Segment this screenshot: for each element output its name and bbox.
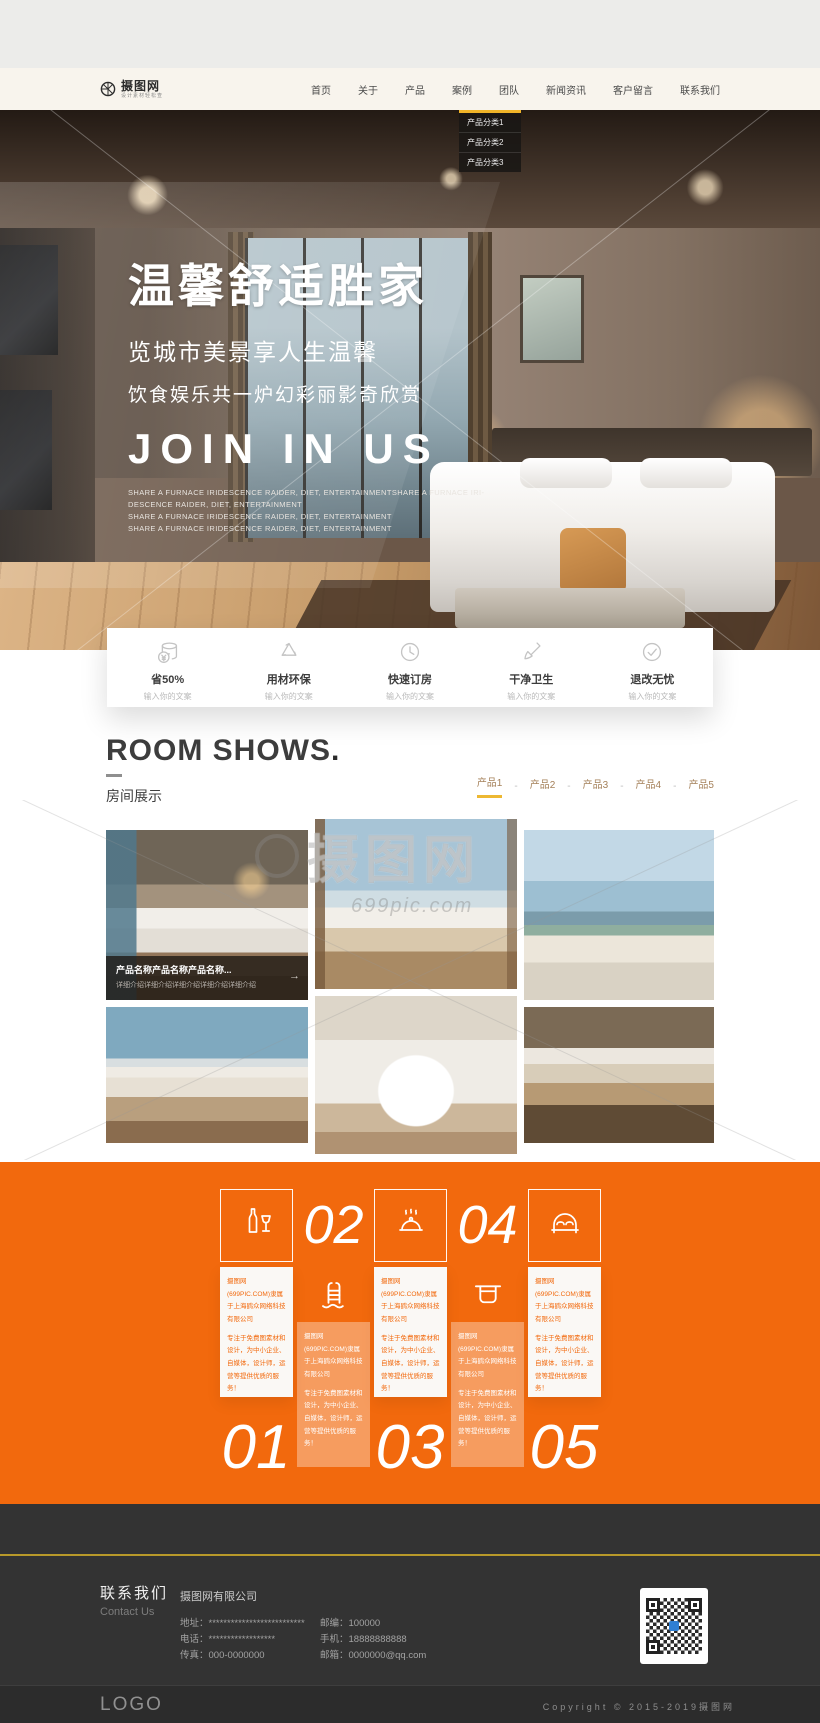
promo-icon-towel [451, 1267, 524, 1325]
tab-separator: - [620, 781, 623, 792]
promo-card-text: 摄图网(699PIC.COM)隶属于上海鹍众网络科技有限公司 [381, 1276, 440, 1327]
page: 摄图网 设计素材轻松查 首页 关于 产品 案例 团队 新闻资讯 客户留言 联系我… [0, 0, 820, 1723]
promo-card-text: 专注于免费图素材和设计，为中小企业、自媒体，设计师，运营等提供优质的服务！ [381, 1333, 440, 1396]
footer-logo: LOGO [100, 1694, 163, 1716]
logo-name: 摄图网 [121, 80, 163, 92]
feature-clean: 干净卫生 输入你的文案 [471, 628, 592, 707]
promo-icon-pool [297, 1267, 370, 1325]
footer-copyright: Copyright © 2015-2019摄图网 [543, 1700, 735, 1713]
promo-card-white: 摄图网(699PIC.COM)隶属于上海鹍众网络科技有限公司 专注于免费图素材和… [220, 1267, 293, 1397]
tab-product-3[interactable]: 产品3 [583, 776, 609, 797]
hero-text-block: 温馨舒适胜家 览城市美景享人生温馨 饮食娱乐共一炉幻彩丽影奇欣赏 JOIN IN… [128, 250, 688, 535]
promo-card-text: 专注于免费图素材和设计，为中小企业、自媒体，设计师，运营等提供优质的服务！ [458, 1388, 517, 1451]
footer-label: 传真： [180, 1650, 209, 1661]
promo-card-text: 摄图网(699PIC.COM)隶属于上海鹍众网络科技有限公司 [535, 1276, 594, 1327]
promo-number-01: 01 [206, 1412, 306, 1483]
nav-item-cases[interactable]: 案例 [452, 82, 472, 97]
nav-item-feedback[interactable]: 客户留言 [613, 82, 653, 97]
wine-icon [237, 1203, 277, 1248]
promo-card-text: 专注于免费图素材和设计，为中小企业、自媒体，设计师，运营等提供优质的服务！ [227, 1333, 286, 1396]
hero-headline-en: JOIN IN US [128, 425, 688, 473]
footer-label: 电话： [180, 1634, 209, 1645]
feature-save: 省50% 输入你的文案 [107, 628, 228, 707]
footer-bottom-bar: LOGO Copyright © 2015-2019摄图网 [0, 1685, 820, 1723]
footer-label: 邮编： [320, 1618, 349, 1629]
feature-fast-booking: 快速订房 输入你的文案 [349, 628, 470, 707]
feature-title: 快速订房 [349, 671, 470, 687]
dropdown-item-category3[interactable]: 产品分类3 [459, 152, 521, 172]
footer-value: 000-0000000 [209, 1650, 265, 1661]
nav-item-contact[interactable]: 联系我们 [680, 82, 720, 97]
tab-separator: - [673, 781, 676, 792]
tab-product-1[interactable]: 产品1 [477, 774, 503, 798]
footer-value: ************************** [209, 1618, 305, 1629]
promo-number-05: 05 [514, 1412, 614, 1483]
promo-number-02: 02 [297, 1189, 370, 1262]
qr-finder [688, 1598, 702, 1612]
footer-zip-line: 邮编：100000 [320, 1616, 426, 1632]
gallery-photo-bedroom[interactable]: 产品名称产品名称产品名称... 详细介绍详细介绍详细介绍详细介绍详细介绍 → [106, 830, 308, 1000]
footer-address-line: 地址：************************** [180, 1616, 305, 1632]
food-cloche-icon [391, 1203, 431, 1248]
promo-iconbox-bed [528, 1189, 601, 1262]
recycle-icon [228, 637, 349, 667]
nav-item-home[interactable]: 首页 [311, 82, 331, 97]
main-nav: 首页 关于 产品 案例 团队 新闻资讯 客户留言 联系我们 [311, 82, 720, 97]
feature-bar: 省50% 输入你的文案 用材环保 输入你的文案 快速订房 输入你的文案 [107, 628, 713, 707]
promo-iconbox-drinks [220, 1189, 293, 1262]
gallery-caption-desc: 详细介绍详细介绍详细介绍详细介绍详细介绍 [116, 980, 298, 990]
coins-icon [107, 637, 228, 667]
product-tabs: 产品1 - 产品2 - 产品3 - 产品4 - 产品5 [477, 774, 714, 798]
hero-desc-line: SHARE A FURNACE IRIDESCENCE RAIDER, DIET… [128, 511, 688, 523]
feature-title: 用材环保 [228, 671, 349, 687]
footer-company-name: 摄图网有限公司 [180, 1588, 257, 1604]
bed-icon [545, 1203, 585, 1248]
aperture-logo-icon [100, 81, 116, 97]
feature-title: 干净卫生 [471, 671, 592, 687]
promo-iconbox-food [374, 1189, 447, 1262]
promo-section: 02 04 摄图网(699PIC.COM)隶属于上海鹍众网络科技有限公司 [0, 1162, 820, 1504]
gallery-photo-washbasin[interactable] [106, 1007, 308, 1143]
feature-title: 退改无忧 [592, 671, 713, 687]
tab-product-2[interactable]: 产品2 [530, 776, 556, 797]
room-shows-section-head: ROOM SHOWS. 房间展示 产品1 - 产品2 - 产品3 - 产品4 -… [106, 734, 714, 806]
gallery-caption-title: 产品名称产品名称产品名称... [116, 963, 298, 976]
feature-subtitle: 输入你的文案 [471, 691, 592, 702]
logo-tagline: 设计素材轻松查 [121, 94, 163, 99]
gallery-caption: 产品名称产品名称产品名称... 详细介绍详细介绍详细介绍详细介绍详细介绍 → [106, 956, 308, 1000]
feature-worry-free: 退改无忧 输入你的文案 [592, 628, 713, 707]
gallery-photo-bathroom-counter[interactable] [524, 1007, 714, 1143]
logo-text-block: 摄图网 设计素材轻松查 [121, 80, 163, 99]
footer-info-right: 邮编：100000 手机：18888888888 邮箱：0000000@qq.c… [320, 1616, 426, 1664]
nav-item-products[interactable]: 产品 [405, 82, 425, 97]
hero-subtitle-1: 览城市美景享人生温馨 [128, 333, 688, 367]
footer-value: 100000 [349, 1618, 381, 1629]
nav-item-news[interactable]: 新闻资讯 [546, 82, 586, 97]
footer-gold-divider [0, 1554, 820, 1556]
hero-desc-line: SHARE A FURNACE IRIDESCENCE RAIDER, DIET… [128, 487, 688, 499]
footer-value: ****************** [209, 1634, 276, 1645]
qr-center-logo [669, 1621, 679, 1631]
brush-icon [471, 637, 592, 667]
promo-card-white: 摄图网(699PIC.COM)隶属于上海鹍众网络科技有限公司 专注于免费图素材和… [528, 1267, 601, 1397]
promo-number-04: 04 [451, 1189, 524, 1262]
site-logo[interactable]: 摄图网 设计素材轻松查 [100, 80, 163, 99]
promo-card-text: 摄图网(699PIC.COM)隶属于上海鹍众网络科技有限公司 [458, 1331, 517, 1382]
towel-icon [466, 1272, 510, 1321]
footer-email-line: 邮箱：0000000@qq.com [320, 1648, 426, 1664]
section-title-dash [106, 774, 122, 777]
nav-item-team[interactable]: 团队 [499, 82, 519, 97]
promo-card-text: 专注于免费图素材和设计，为中小企业、自媒体，设计师，运营等提供优质的服务！ [304, 1388, 363, 1451]
tab-product-5[interactable]: 产品5 [688, 776, 714, 797]
footer-info-left: 地址：************************** 电话：*******… [180, 1616, 305, 1664]
section-title-en: ROOM SHOWS. [106, 734, 714, 768]
tab-separator: - [514, 781, 517, 792]
section-title-dot: . [331, 734, 340, 767]
clock-icon [349, 637, 470, 667]
footer-label: 手机： [320, 1634, 349, 1645]
feature-subtitle: 输入你的文案 [107, 691, 228, 702]
hero-desc-line: SHARE A FURNACE IRIDESCENCE RAIDER, DIET… [128, 523, 688, 535]
footer-contact-title-cn: 联系我们 [100, 1582, 168, 1603]
feature-title: 省50% [107, 671, 228, 687]
footer-label: 邮箱： [320, 1650, 349, 1661]
promo-card-text: 摄图网(699PIC.COM)隶属于上海鹍众网络科技有限公司 [227, 1276, 286, 1327]
qr-code [640, 1588, 708, 1664]
qr-finder [646, 1598, 660, 1612]
footer-label: 地址： [180, 1618, 209, 1629]
hero-banner: 温馨舒适胜家 览城市美景享人生温馨 饮食娱乐共一炉幻彩丽影奇欣赏 JOIN IN… [0, 110, 820, 650]
gallery-photo-white-bathtub[interactable] [315, 996, 517, 1154]
promo-card-text: 摄图网(699PIC.COM)隶属于上海鹍众网络科技有限公司 [304, 1331, 363, 1382]
site-footer: 联系我们 Contact Us 摄图网有限公司 地址：*************… [0, 1504, 820, 1723]
footer-contact-title-en: Contact Us [100, 1606, 154, 1618]
pool-ladder-icon [312, 1272, 356, 1321]
products-dropdown: 产品分类1 产品分类2 产品分类3 [459, 110, 521, 172]
gallery-photo-seaview-window[interactable] [524, 830, 714, 1000]
dropdown-item-category1[interactable]: 产品分类1 [459, 113, 521, 132]
tab-separator: - [567, 781, 570, 792]
site-header: 摄图网 设计素材轻松查 首页 关于 产品 案例 团队 新闻资讯 客户留言 联系我… [0, 68, 820, 110]
hero-subtitle-2: 饮食娱乐共一炉幻彩丽影奇欣赏 [128, 380, 688, 407]
qr-code-pattern [646, 1598, 702, 1654]
footer-phone-line: 电话：****************** [180, 1632, 305, 1648]
feature-eco: 用材环保 输入你的文案 [228, 628, 349, 707]
promo-number-03: 03 [360, 1412, 460, 1483]
hero-description: SHARE A FURNACE IRIDESCENCE RAIDER, DIET… [128, 487, 688, 535]
footer-value: 0000000@qq.com [349, 1650, 427, 1661]
footer-value: 18888888888 [349, 1634, 407, 1645]
feature-subtitle: 输入你的文案 [592, 691, 713, 702]
tab-product-4[interactable]: 产品4 [636, 776, 662, 797]
feature-subtitle: 输入你的文案 [228, 691, 349, 702]
footer-fax-line: 传真：000-0000000 [180, 1648, 305, 1664]
qr-finder [646, 1640, 660, 1654]
promo-card-text: 专注于免费图素材和设计，为中小企业、自媒体，设计师，运营等提供优质的服务！ [535, 1333, 594, 1396]
footer-mobile-line: 手机：18888888888 [320, 1632, 426, 1648]
hero-title: 温馨舒适胜家 [128, 250, 688, 316]
hero-art-chair [560, 528, 626, 590]
dropdown-item-category2[interactable]: 产品分类2 [459, 132, 521, 152]
gallery-photo-bathtub-window[interactable] [315, 819, 517, 989]
section-title-text: ROOM SHOWS [106, 734, 331, 767]
promo-card-white: 摄图网(699PIC.COM)隶属于上海鹍众网络科技有限公司 专注于免费图素材和… [374, 1267, 447, 1397]
feature-subtitle: 输入你的文案 [349, 691, 470, 702]
arrow-right-icon[interactable]: → [289, 970, 300, 982]
hero-art-bench [455, 588, 685, 628]
top-gray-strip [0, 0, 820, 68]
nav-item-about[interactable]: 关于 [358, 82, 378, 97]
hero-desc-line: DESCENCE RAIDER, DIET, ENTERTAINMENT [128, 499, 688, 511]
check-circle-icon [592, 637, 713, 667]
